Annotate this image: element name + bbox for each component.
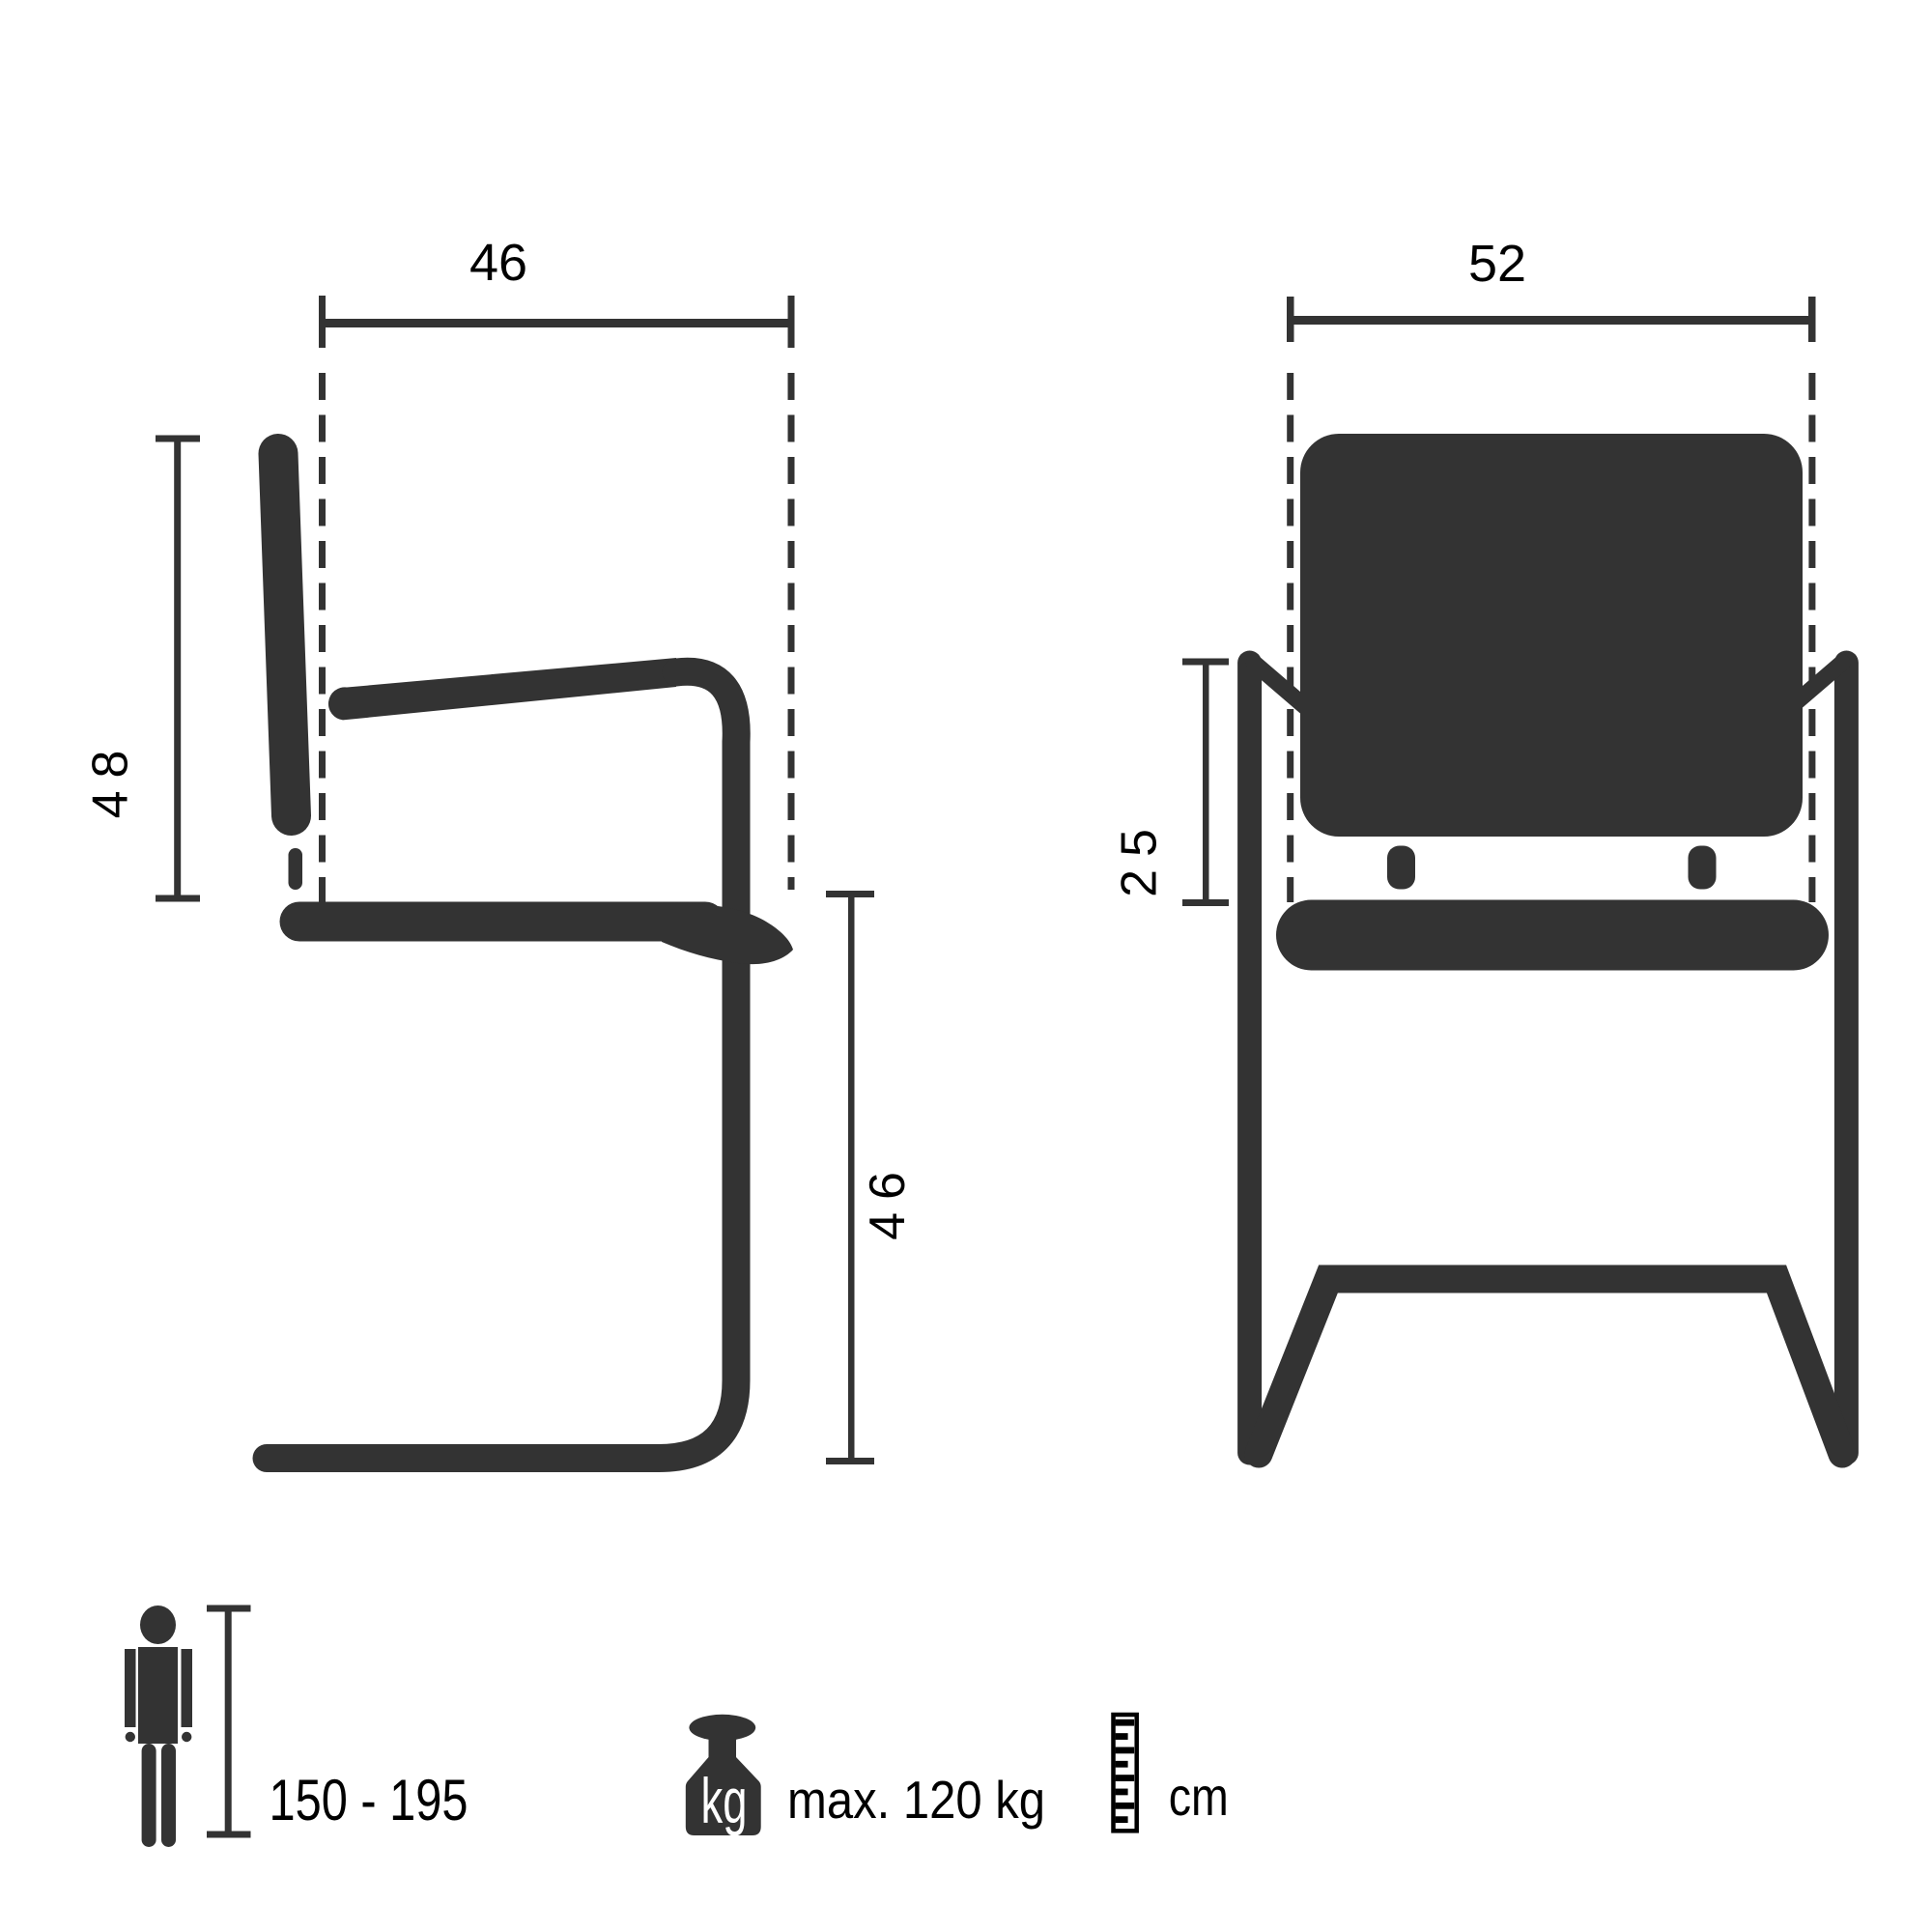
svg-text:max. 120 kg: max. 120 kg	[787, 1770, 1045, 1830]
svg-text:cm: cm	[1169, 1766, 1229, 1827]
svg-text:48: 48	[83, 738, 139, 819]
svg-text:52: 52	[1468, 235, 1526, 293]
svg-text:150 - 195: 150 - 195	[270, 1768, 469, 1833]
svg-text:46: 46	[860, 1159, 916, 1240]
svg-text:46: 46	[469, 234, 527, 292]
svg-text:25: 25	[1112, 816, 1168, 897]
svg-text:kg: kg	[701, 1765, 748, 1836]
